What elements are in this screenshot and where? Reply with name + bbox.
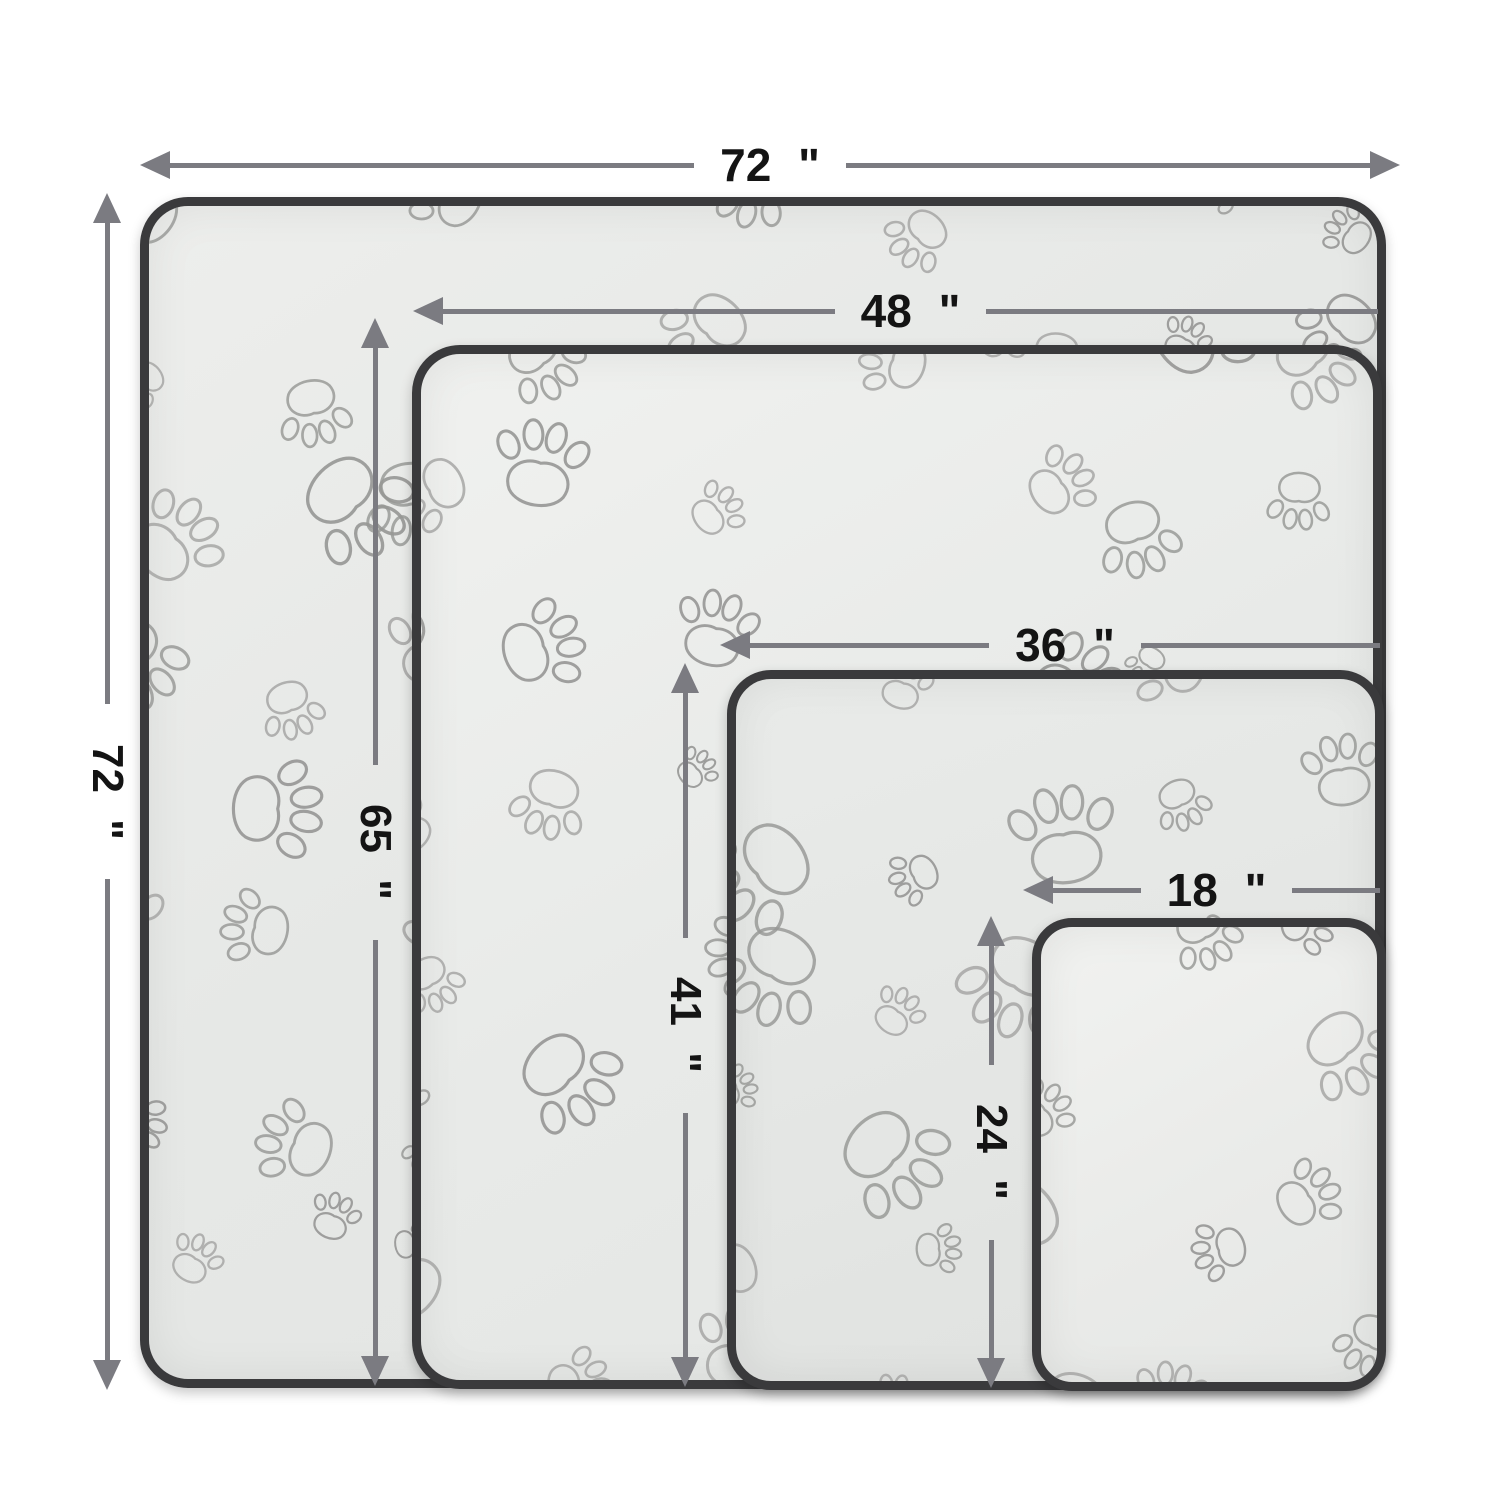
dimension-label-width-48: 48 " <box>835 288 987 334</box>
dimension-line <box>1053 888 1141 893</box>
dimension-line <box>1292 888 1380 893</box>
dimension-width-18: 18 " <box>1023 862 1380 918</box>
dimension-height-65: 65 " <box>347 318 403 1386</box>
dimension-height-41: 41 " <box>657 663 713 1387</box>
size-diagram: 72 " 72 " 48 " 65 " 36 " 41 " <box>0 0 1500 1500</box>
dimension-label-width-18: 18 " <box>1141 867 1293 913</box>
arrow-down-icon <box>361 1356 389 1386</box>
dimension-line <box>105 223 110 704</box>
arrow-left-icon <box>1023 876 1053 904</box>
arrow-up-icon <box>671 663 699 693</box>
dimension-height-24: 24 " <box>963 916 1019 1388</box>
dimension-line <box>1141 643 1380 648</box>
dimension-line <box>986 309 1378 314</box>
arrow-up-icon <box>977 916 1005 946</box>
dimension-line <box>105 879 110 1360</box>
dimension-line <box>683 693 688 938</box>
arrow-down-icon <box>671 1357 699 1387</box>
dimension-width-72: 72 " <box>140 137 1400 193</box>
dimension-line <box>373 940 378 1357</box>
dimension-line <box>170 163 694 168</box>
dimension-line <box>989 1240 994 1359</box>
dimension-label-height-72: 72 " <box>85 743 129 839</box>
arrow-right-icon <box>1370 151 1400 179</box>
dimension-line <box>989 946 994 1065</box>
blanket-18x24 <box>1032 918 1386 1391</box>
arrow-up-icon <box>361 318 389 348</box>
dimension-label-height-41: 41 " <box>663 977 707 1073</box>
dimension-line <box>443 309 835 314</box>
dimension-width-48: 48 " <box>413 283 1378 339</box>
dimension-line <box>683 1113 688 1358</box>
paw-print-pattern <box>1041 927 1377 1382</box>
dimension-height-72: 72 " <box>79 193 135 1390</box>
arrow-down-icon <box>977 1358 1005 1388</box>
dimension-line <box>846 163 1370 168</box>
dimension-line <box>750 643 989 648</box>
arrow-left-icon <box>413 297 443 325</box>
arrow-left-icon <box>140 151 170 179</box>
arrow-up-icon <box>93 193 121 223</box>
dimension-label-height-24: 24 " <box>969 1104 1013 1200</box>
arrow-left-icon <box>720 631 750 659</box>
dimension-line <box>373 348 378 765</box>
dimension-width-36: 36 " <box>720 617 1380 673</box>
arrow-down-icon <box>93 1360 121 1390</box>
dimension-label-height-65: 65 " <box>353 804 397 900</box>
dimension-label-width-72: 72 " <box>694 142 846 188</box>
dimension-label-width-36: 36 " <box>989 622 1141 668</box>
